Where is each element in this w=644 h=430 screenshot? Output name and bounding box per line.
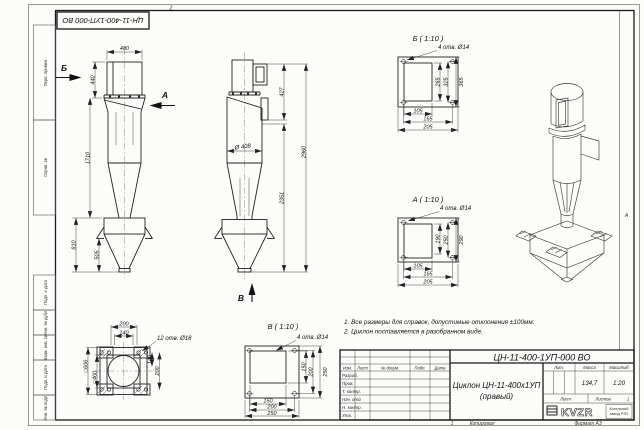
- detail-b-dim-265: 265: [436, 76, 442, 87]
- bottom-view: 200 140 12 отв. Ø18 140 200 □606 □400: [84, 322, 192, 401]
- zone-bottom: 1: [451, 421, 454, 427]
- detail-b-dim-165: 165: [423, 117, 433, 123]
- front-view: 480 440 1710 810 505 Б А: [56, 46, 175, 278]
- col-podp: Подп.: [414, 366, 425, 371]
- bottom-strip: Копировал Формат А3: [470, 421, 602, 427]
- margin-column: Перв. примен. Справ. № Подп. и дата Инв.…: [34, 25, 56, 421]
- detail-b-dim-325: 325: [444, 76, 450, 86]
- zone-side: А: [624, 213, 629, 219]
- detail-b-title: Б ( 1:10 ): [413, 34, 444, 43]
- detail-v-title: В ( 1:10 ): [268, 322, 299, 331]
- company-logo: KVZR Котельный завод РЗП: [547, 405, 632, 420]
- detail-v-dim-150v: 150: [302, 361, 308, 371]
- detail-a-dim-165: 165: [423, 272, 433, 278]
- note-line-1: 1. Все размеры для справок, допустимые о…: [344, 318, 535, 326]
- format-label: Формат А3: [574, 421, 602, 427]
- doc-name-line2: (правый): [480, 392, 513, 401]
- dim-810-label: 810: [72, 239, 78, 249]
- margin-label-perv-primen: Перв. примен.: [43, 59, 48, 87]
- scale-value: 1:20: [613, 380, 626, 387]
- bottom-dim-200-right: 200: [155, 365, 161, 376]
- detail-a-dim-250: 250: [444, 234, 450, 245]
- detail-a-dim-290: 290: [459, 234, 465, 245]
- side-view: Ø 408 427 2351 2960 В: [215, 52, 309, 303]
- detail-a-dim-190: 190: [436, 233, 442, 243]
- stamp-designation: ЦН-11-400-1УП-000 ВО: [62, 16, 143, 25]
- notes: 1. Все размеры для справок, допустимые о…: [343, 318, 535, 336]
- dim-505-label: 505: [95, 249, 101, 259]
- top-stamp: ЦН-11-400-1УП-000 ВО: [57, 12, 149, 29]
- detail-a-view: А ( 1:10 ) 4 отв. Ø14 190 250 290 105 16…: [398, 195, 472, 287]
- margin-label-sprav: Справ. №: [43, 157, 48, 177]
- label-lit: Лит.: [553, 365, 564, 370]
- bottom-dim-sq400: □400: [93, 370, 99, 383]
- row-tkontr: Т. контр.: [342, 389, 361, 394]
- company-line2: завод РЗП: [610, 412, 629, 416]
- title-block: Изм. Лист № докум. Подп. Дата Разраб. Пр…: [340, 350, 634, 420]
- dim-1710-label: 1710: [86, 151, 92, 164]
- detail-v-holes-label: 4 отв. Ø14: [297, 335, 329, 341]
- detail-v-dim-250v: 250: [323, 366, 329, 377]
- detail-b-dim-205: 205: [422, 125, 433, 131]
- bottom-holes-label: 12 отв. Ø18: [157, 336, 192, 342]
- detail-b-dim-365: 365: [459, 76, 465, 86]
- detail-b-view: Б ( 1:10 ) 4 отв. Ø14 265 325 365 105 16…: [398, 34, 470, 132]
- detail-v-dim-200h: 200: [266, 405, 277, 411]
- isometric-view: [516, 84, 612, 283]
- note-line-2: 2. Циклон поставляется в разобранном вид…: [343, 328, 483, 336]
- row-nachotd: Нач. отд.: [342, 397, 362, 402]
- company-line1: Котельный: [609, 407, 628, 411]
- detail-b-holes-label: 4 отв. Ø14: [438, 45, 470, 51]
- col-doc: № докум.: [381, 366, 399, 371]
- label-sheets: Листов: [594, 397, 611, 402]
- margin-label-inv-podl: Инв. № подл.: [43, 394, 48, 420]
- dim-427-label: 427: [280, 86, 286, 96]
- drawing-sheet: Перв. примен. Справ. № Подп. и дата Инв.…: [0, 0, 644, 430]
- row-utv: Утв.: [342, 413, 352, 418]
- dim-dia408-label: Ø 408: [233, 143, 252, 151]
- label-mass: Масса: [583, 365, 596, 370]
- row-prov: Пров.: [342, 381, 354, 386]
- margin-label-inv-dubl: Инв. № дубл.: [43, 310, 48, 336]
- detail-v-dim-200v: 200: [309, 366, 315, 377]
- bottom-dim-200-top: 200: [118, 322, 129, 328]
- doc-designation: ЦН-11-400-1УП-000 ВО: [494, 353, 591, 363]
- view-marker-a: А: [161, 90, 168, 100]
- margin-label-podp-data-2: Подп. и дата: [43, 364, 48, 389]
- label-scale: Масштаб: [609, 365, 629, 370]
- bottom-dim-sq606: □606: [84, 359, 90, 372]
- col-list: Лист: [356, 366, 368, 371]
- detail-a-holes-label: 4 отв. Ø14: [440, 206, 472, 212]
- label-sheet: Лист: [559, 397, 571, 402]
- sheets-value: 1: [627, 397, 629, 402]
- detail-v-view: В ( 1:10 ) 4 отв. Ø14 150 200 250 150 20…: [245, 322, 329, 418]
- zone-top: 2: [169, 6, 173, 12]
- dim-480-label: 480: [120, 46, 130, 52]
- bottom-dim-140-top: 140: [119, 331, 129, 337]
- dim-440-label: 440: [91, 74, 97, 84]
- detail-a-dim-105: 105: [413, 264, 423, 270]
- drawing-canvas: Перв. примен. Справ. № Подп. и дата Инв.…: [0, 0, 644, 430]
- detail-a-title: А ( 1:10 ): [412, 195, 444, 204]
- margin-label-vzam-inv: Взам. инв. №: [43, 334, 48, 360]
- row-nkontr: Н. контр.: [342, 405, 362, 410]
- col-data: Дата: [433, 366, 446, 371]
- doc-name-line1: Циклон ЦН-11-400х1УП: [453, 381, 541, 390]
- dim-2351-label: 2351: [280, 192, 286, 205]
- dim-2960-label: 2960: [302, 145, 308, 159]
- copied-label: Копировал: [470, 421, 495, 427]
- detail-v-dim-250h: 250: [266, 411, 277, 417]
- col-izm: Изм.: [343, 366, 352, 371]
- detail-b-dim-105: 105: [413, 109, 423, 115]
- coil-icon: [547, 406, 557, 415]
- bottom-dim-140-right: 140: [148, 354, 154, 364]
- logo-text: KVZR: [561, 407, 593, 419]
- row-razrab: Разраб.: [342, 373, 358, 378]
- mass-value: 134,7: [582, 380, 598, 387]
- view-marker-v: В: [238, 293, 244, 303]
- margin-label-podp-data-1: Подп. и дата: [43, 279, 48, 304]
- detail-a-dim-205: 205: [422, 280, 433, 286]
- view-marker-b: Б: [61, 63, 67, 73]
